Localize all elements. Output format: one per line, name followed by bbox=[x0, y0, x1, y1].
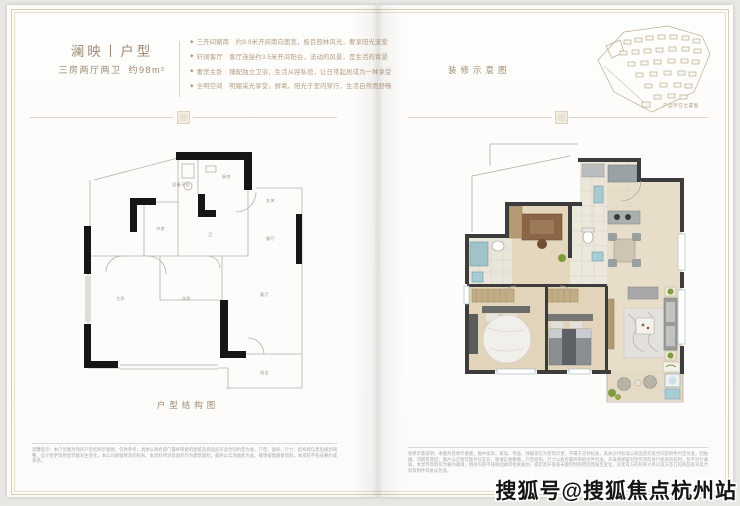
divider-ornament-icon bbox=[177, 111, 190, 124]
divider-line bbox=[408, 117, 552, 118]
site-location-map bbox=[590, 20, 718, 124]
unit-area: 约98m² bbox=[129, 65, 166, 75]
disclaimer-rule bbox=[408, 447, 708, 448]
feature-item: ◆ 全明空间 明媚采光享受，鲜氧、阳光于室内穿行，生活自然而舒畅 bbox=[190, 81, 370, 96]
diamond-bullet-icon: ◆ bbox=[190, 39, 194, 45]
decor-plan-label: 装修示意图 bbox=[448, 64, 511, 76]
feature-item: ◆ 奢宽主卧 臻配独立卫浴，生活从容私密，让日常起居成为一种享受 bbox=[190, 67, 370, 82]
unit-subtitle: 三房两厅两卫 约98m² bbox=[48, 63, 176, 76]
plan-caption: 户型结构图 bbox=[118, 399, 258, 411]
svg-text:主卧: 主卧 bbox=[116, 295, 125, 302]
unit-title: 澜映丨户型 bbox=[52, 40, 172, 60]
feature-item: ◆ 轩阔客厅 客厅连接约3.5米开间阳台，流动的风景，是生活的背景 bbox=[190, 52, 370, 67]
diamond-bullet-icon: ◆ bbox=[190, 83, 194, 89]
feature-item: ◆ 三开间朝南 约9.9米开间南向面宽，极目园林风光，奢享阳光宠爱 bbox=[190, 37, 370, 52]
divider-line bbox=[30, 117, 173, 118]
floorplan-structure-drawing: 设备平台 厨房 书房 卫 玄关 餐厅 主卧 次卧 客厅 阳台 bbox=[60, 136, 316, 396]
divider-ornament-icon bbox=[555, 111, 568, 124]
svg-text:书房: 书房 bbox=[156, 225, 165, 232]
disclaimer-rule bbox=[32, 443, 337, 444]
page-gutter-shadow bbox=[352, 5, 404, 497]
title-divider-line bbox=[179, 41, 180, 97]
sitemap-caption: 户型所在位置图 bbox=[663, 103, 699, 109]
plan-bearing-walls bbox=[84, 152, 302, 368]
watermark: 搜狐号@搜狐焦点杭州站 bbox=[496, 475, 737, 505]
svg-text:阳台: 阳台 bbox=[260, 369, 269, 376]
diamond-bullet-icon: ◆ bbox=[190, 53, 194, 59]
feature-list: ◆ 三开间朝南 约9.9米开间南向面宽，极目园林风光，奢享阳光宠爱 ◆ 轩阔客厅… bbox=[190, 37, 370, 96]
divider-line bbox=[193, 117, 337, 118]
brochure-spread-photo: 澜映丨户型 三房两厅两卫 约98m² ◆ 三开间朝南 约9.9米开间南向面宽，极… bbox=[0, 0, 740, 506]
svg-text:客厅: 客厅 bbox=[260, 291, 269, 298]
diamond-bullet-icon: ◆ bbox=[190, 68, 194, 74]
right-disclaimer: 装修示意说明：本图为装修示意图，图中家具、家电、饰品、绿植等仅为装饰示意，不属于… bbox=[408, 451, 708, 473]
svg-text:次卧: 次卧 bbox=[182, 295, 191, 302]
svg-text:卫: 卫 bbox=[208, 232, 213, 237]
site-buildings bbox=[620, 35, 701, 107]
svg-text:玄关: 玄关 bbox=[266, 197, 275, 204]
divider-line bbox=[569, 117, 708, 118]
plan-thin-walls bbox=[86, 158, 302, 388]
floorplan-decorated-drawing bbox=[452, 136, 704, 408]
svg-text:厨房: 厨房 bbox=[222, 173, 231, 180]
unit-rooms: 三房两厅两卫 bbox=[58, 65, 121, 75]
svg-text:设备平台: 设备平台 bbox=[172, 181, 190, 188]
svg-text:餐厅: 餐厅 bbox=[266, 235, 275, 242]
left-disclaimer: 温馨提示：本户型图为项目户型结构示意图，仅供参考，具体以政府部门最终审批的图纸及… bbox=[32, 447, 337, 464]
